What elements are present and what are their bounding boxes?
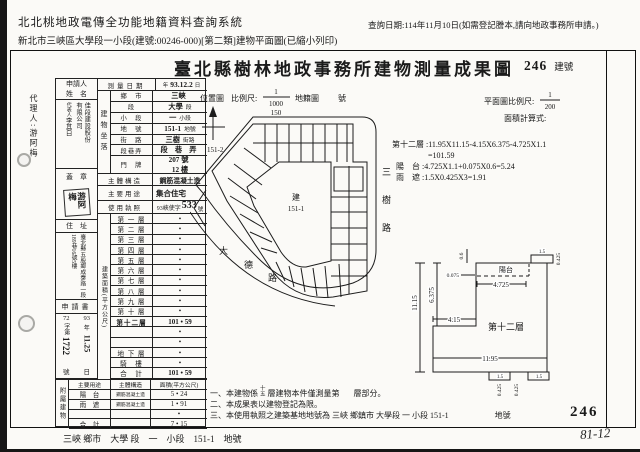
lot-number: 151-1 (288, 205, 305, 213)
scan-edge-artifact-left (0, 0, 7, 452)
building-number: 246 建號 (524, 58, 573, 74)
structure-label: 主體構造 (98, 174, 153, 186)
survey-form-table: 申請人 姓 名 佳段建設股份 有限公司 代表人李其白 蓋 章 游阿梅 住 址 臺… (55, 78, 206, 427)
system-title: 北北桃地政電傳全功能地籍資料查詢系統 (18, 14, 243, 30)
svg-text:1.5: 1.5 (497, 375, 504, 380)
round-stamp-icon (18, 315, 35, 332)
svg-text:200: 200 (545, 103, 556, 111)
svg-text:0.6: 0.6 (459, 252, 465, 259)
svg-text:0.425: 0.425 (514, 384, 520, 397)
svg-text:1: 1 (274, 88, 278, 96)
svg-text:4.725: 4.725 (493, 281, 509, 289)
dimension-lines: 4.725 0.075 0.6 6.375 11.15 4.15 11.95 (411, 249, 547, 372)
svg-text:號: 號 (338, 93, 346, 103)
svg-text:0.075: 0.075 (447, 273, 460, 279)
annex-rows: 陽 台 鋼筋混凝土造 5 • 24 雨 遮 鋼筋混凝土造 1 • 91 • (69, 389, 207, 428)
location-label-vertical: 建物坐落 (98, 91, 111, 174)
calc-line-4: 雨 遮 :1.5X0.425X3=1.91 (396, 172, 486, 182)
note-3: 三、本使用執照之建築基地地號為 三峽 鄉鎮市 大學段 一 小段 151-1 地號 (210, 410, 511, 421)
app-no-mid: 字第 (62, 323, 71, 335)
note-1-floors-stacked: 十五 (260, 387, 266, 397)
cadastral-map-label: 地籍圖 (295, 93, 319, 103)
north-arrow-icon (202, 106, 225, 140)
svg-text:0.425: 0.425 (497, 384, 503, 397)
svg-text:1000: 1000 (269, 100, 284, 108)
survey-drawing: 位置圖 比例尺: 1 1000 150 地籍圖 號 151-2 (190, 82, 610, 428)
round-stamp-icon (17, 153, 31, 167)
svg-text:三: 三 (382, 167, 391, 177)
handwritten-page-code: 81-12 (579, 425, 610, 443)
balcony-label: 陽台 (499, 265, 513, 274)
applicant-company-cell: 佳段建設股份 有限公司 代表人李其白 (56, 100, 98, 169)
svg-text:1.5: 1.5 (539, 250, 546, 255)
main-use-label: 主要用途 (98, 186, 153, 201)
agent-name-vertical: 代理人:游阿梅 (28, 94, 39, 190)
app-no-handwritten: 1722 (61, 337, 71, 355)
scanned-document-page: 北北桃地政電傳全功能地籍資料查詢系統 查詢日期:114年11月10日(如需登記謄… (0, 0, 640, 452)
svg-text:11.95: 11.95 (482, 355, 498, 363)
svg-text:德: 德 (244, 259, 253, 270)
app-date-year: 93 (84, 315, 91, 322)
survey-date-label: 測量日期 (98, 79, 156, 91)
building-number-large: 246 (570, 404, 599, 421)
note-2: 二、本成果表以建物登記為限。 (210, 399, 322, 410)
svg-text:路: 路 (382, 222, 391, 233)
annex-row: 雨 遮 鋼筋混凝土造 1 • 91 (69, 400, 207, 410)
road-name-right: 三 樹 路 (382, 167, 391, 233)
document-title: 臺北縣樹林地政事務所建物測量成果圖 (158, 55, 530, 80)
app-no-prefix: 72 (63, 315, 70, 322)
svg-text:4.15: 4.15 (448, 316, 461, 324)
annex-label-vertical: 附屬建物 (56, 379, 69, 428)
application-suffix-row: 號 日 (56, 363, 98, 379)
cadastral-map-no: 150 (271, 109, 282, 117)
road-curve (190, 212, 335, 306)
adjacent-lot-number: 151-2 (207, 146, 224, 154)
site-scale-label: 比例尺: (231, 93, 257, 103)
app-date: 11.25 (82, 335, 91, 353)
calc-line-2: =101.59 (428, 151, 455, 160)
building-number-label: 建號 (554, 59, 573, 73)
site-plan-label: 位置圖 (200, 93, 224, 103)
svg-text:1: 1 (548, 91, 552, 99)
note-1: 一、本建物係 十五 層建物本件僅測量第 層部分。 (210, 388, 386, 399)
svg-text:路: 路 (268, 272, 277, 283)
license-label: 使用執照 (98, 201, 153, 214)
svg-text:6.375: 6.375 (428, 287, 436, 303)
calc-line-3: 陽 台 :4.725X1.1+0.075X0.6=5.24 (396, 161, 515, 171)
svg-text:樹: 樹 (382, 194, 391, 205)
svg-text:1.5: 1.5 (536, 375, 543, 380)
address-cell: 臺北縣五股鄉成泰路一段 189巷16號5樓 (56, 233, 98, 300)
unit-floor-label: 第十二層 (488, 321, 524, 332)
personal-seal-icon: 游阿梅 (63, 188, 91, 217)
floor-area-label-vertical: 建築面積(平方公尺) (98, 214, 111, 379)
application-number-cell: 72 字第 1722 93 年 11.25 (56, 314, 98, 363)
address-label: 住 址 (56, 220, 98, 233)
calc-label: 面積計算式: (504, 113, 546, 123)
seal-label: 蓋 章 (56, 169, 98, 185)
company-name-col1: 佳段建設股份 (83, 102, 89, 143)
company-name-col2: 有限公司 (75, 102, 81, 129)
seal-cell: 游阿梅 (56, 185, 98, 220)
annex-header-row: 主要用途 主體構造 面積(平方公尺) (69, 379, 207, 389)
document-subtitle: 新北市三峽區大學段一小段(建號:00246-000)[第二類]建物平面圖(已縮小… (18, 33, 337, 47)
svg-text:11.15: 11.15 (411, 295, 419, 311)
calc-line-1: 第十二層 :11.95X11.15-4.15X6.375-4.725X1.1 (392, 139, 546, 149)
query-date: 查詢日期:114年11月10日(如需登記謄本,請向地政事務所申請。) (368, 19, 599, 31)
application-label: 申請書 (56, 300, 98, 314)
building-char: 建 (292, 192, 300, 202)
footer-parcel-line: 三峽 鄉市 大學 段 一 小段 151-1 地號 (63, 432, 242, 445)
svg-text:大: 大 (219, 245, 228, 256)
annex-row: 合 計 7 • 15 (69, 419, 207, 429)
applicant-header: 申請人 姓 名 (56, 79, 98, 100)
plan-scale-label: 平面圖比例尺: (484, 96, 534, 106)
building-number-value: 246 (524, 58, 547, 74)
representative: 代表人李其白 (64, 102, 73, 136)
svg-text:0.425: 0.425 (556, 253, 562, 266)
